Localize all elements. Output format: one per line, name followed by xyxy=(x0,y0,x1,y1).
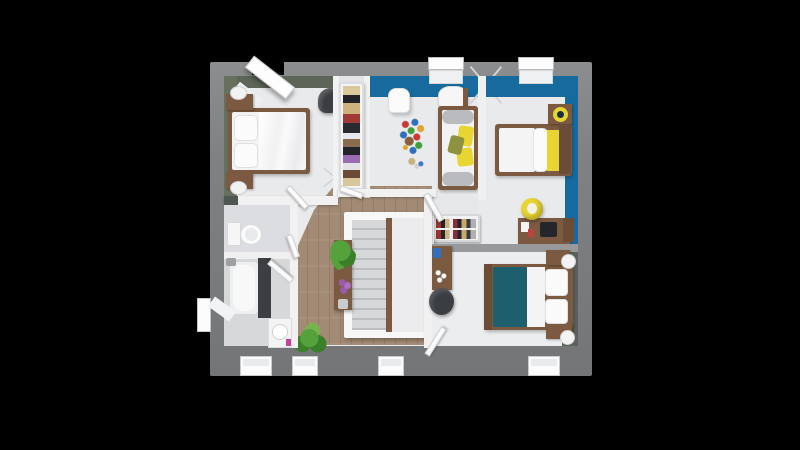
toy-bricks xyxy=(394,116,432,158)
toy-bricks xyxy=(404,155,430,171)
window xyxy=(240,356,272,376)
potted-plant xyxy=(330,237,356,271)
window xyxy=(428,57,464,70)
footboard xyxy=(484,264,492,330)
interior-wall xyxy=(478,76,486,200)
duvet xyxy=(527,267,545,327)
table-lamp xyxy=(230,86,247,100)
bathtub-inner xyxy=(233,265,255,311)
window-pane xyxy=(381,359,401,366)
floor-plan-render xyxy=(0,0,800,450)
potted-plant xyxy=(294,321,328,359)
bolster-pillow xyxy=(442,110,474,124)
pillow xyxy=(234,143,258,168)
window xyxy=(518,57,554,70)
wall-shelf xyxy=(563,218,574,242)
shower-fixture xyxy=(226,258,236,266)
pillow xyxy=(234,115,258,141)
pillow xyxy=(545,269,568,296)
laptop xyxy=(540,222,557,237)
table-lamp xyxy=(560,330,575,345)
staircase-steps xyxy=(352,220,386,330)
window-pane xyxy=(243,359,269,366)
window xyxy=(528,356,560,376)
storage-cabinet xyxy=(258,258,271,318)
chair-seat xyxy=(527,203,537,214)
stairwell-landing xyxy=(392,218,428,332)
shoe-row xyxy=(436,230,476,239)
interior-wall xyxy=(424,196,432,348)
pillow xyxy=(533,128,548,172)
desk-items xyxy=(434,268,448,284)
window-sill xyxy=(519,70,553,84)
headboard xyxy=(559,126,571,174)
decor-item xyxy=(338,299,348,309)
table-lamp xyxy=(561,254,576,269)
window-pane xyxy=(531,359,557,366)
window xyxy=(292,356,318,376)
window-sill xyxy=(429,70,463,84)
tablet xyxy=(433,248,441,258)
purple-flowers xyxy=(337,277,352,296)
toilet-seat xyxy=(245,228,258,241)
desk-item xyxy=(528,229,534,237)
armchair xyxy=(429,288,454,315)
window xyxy=(378,356,404,376)
white-chair xyxy=(388,88,410,113)
side-table-edge xyxy=(463,88,468,108)
single-bed-mattress xyxy=(499,128,535,172)
duvet xyxy=(259,112,305,170)
bolster-pillow xyxy=(442,172,474,186)
toilet-tank xyxy=(227,222,241,246)
washbasin-sink xyxy=(272,324,288,340)
pillow xyxy=(545,299,568,324)
window-pane xyxy=(295,359,315,366)
wardrobe-clothes xyxy=(343,86,360,186)
soap-bottle xyxy=(286,339,291,346)
teal-bedding xyxy=(493,267,527,327)
interior-wall xyxy=(224,196,338,205)
table-lamp xyxy=(553,107,568,122)
table-lamp xyxy=(230,181,247,195)
